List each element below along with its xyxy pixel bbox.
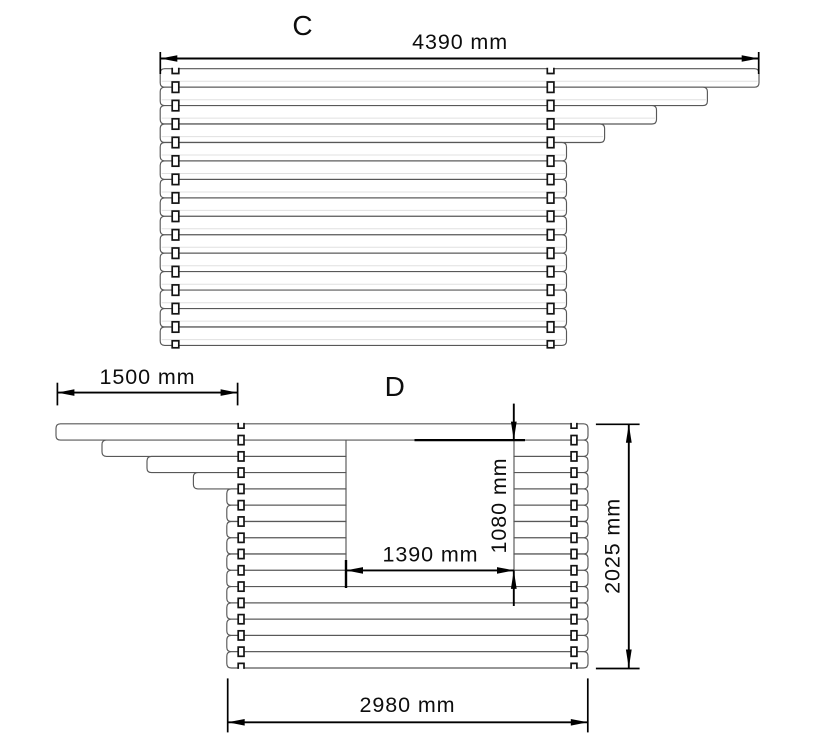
svg-text:1390 mm: 1390 mm [383,543,479,567]
svg-text:2025 mm: 2025 mm [601,498,625,594]
svg-text:2980 mm: 2980 mm [360,693,456,717]
svg-text:4390 mm: 4390 mm [412,30,508,54]
svg-text:D: D [385,371,405,402]
svg-text:1500 mm: 1500 mm [100,365,196,389]
svg-text:1080 mm: 1080 mm [487,458,511,554]
svg-text:C: C [292,10,312,41]
